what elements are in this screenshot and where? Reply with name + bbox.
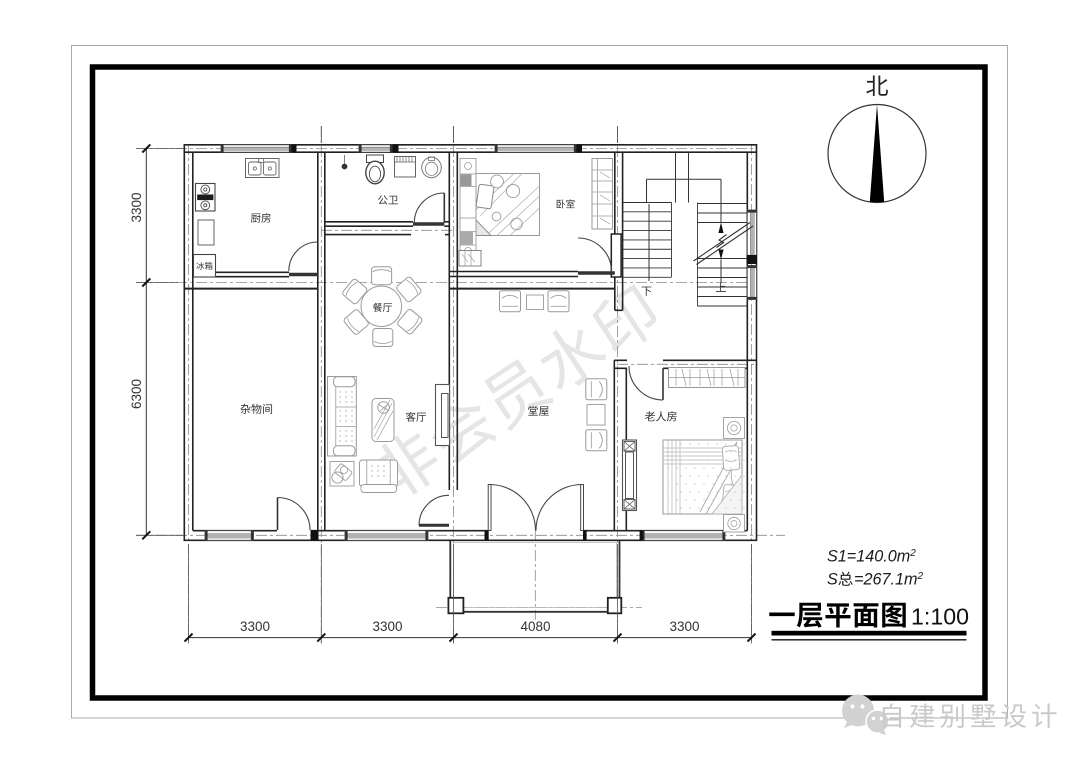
svg-text:=267.1m2: =267.1m2	[854, 571, 923, 589]
svg-text:3300: 3300	[669, 619, 699, 634]
svg-text:4080: 4080	[520, 619, 550, 634]
svg-text:3300: 3300	[129, 192, 144, 222]
svg-text:1:100: 1:100	[911, 604, 969, 630]
svg-text:S: S	[827, 571, 838, 589]
svg-text:S1=140.0m2: S1=140.0m2	[827, 548, 916, 566]
svg-text:6300: 6300	[129, 379, 144, 409]
svg-text:3300: 3300	[240, 619, 270, 634]
svg-text:3300: 3300	[372, 619, 402, 634]
